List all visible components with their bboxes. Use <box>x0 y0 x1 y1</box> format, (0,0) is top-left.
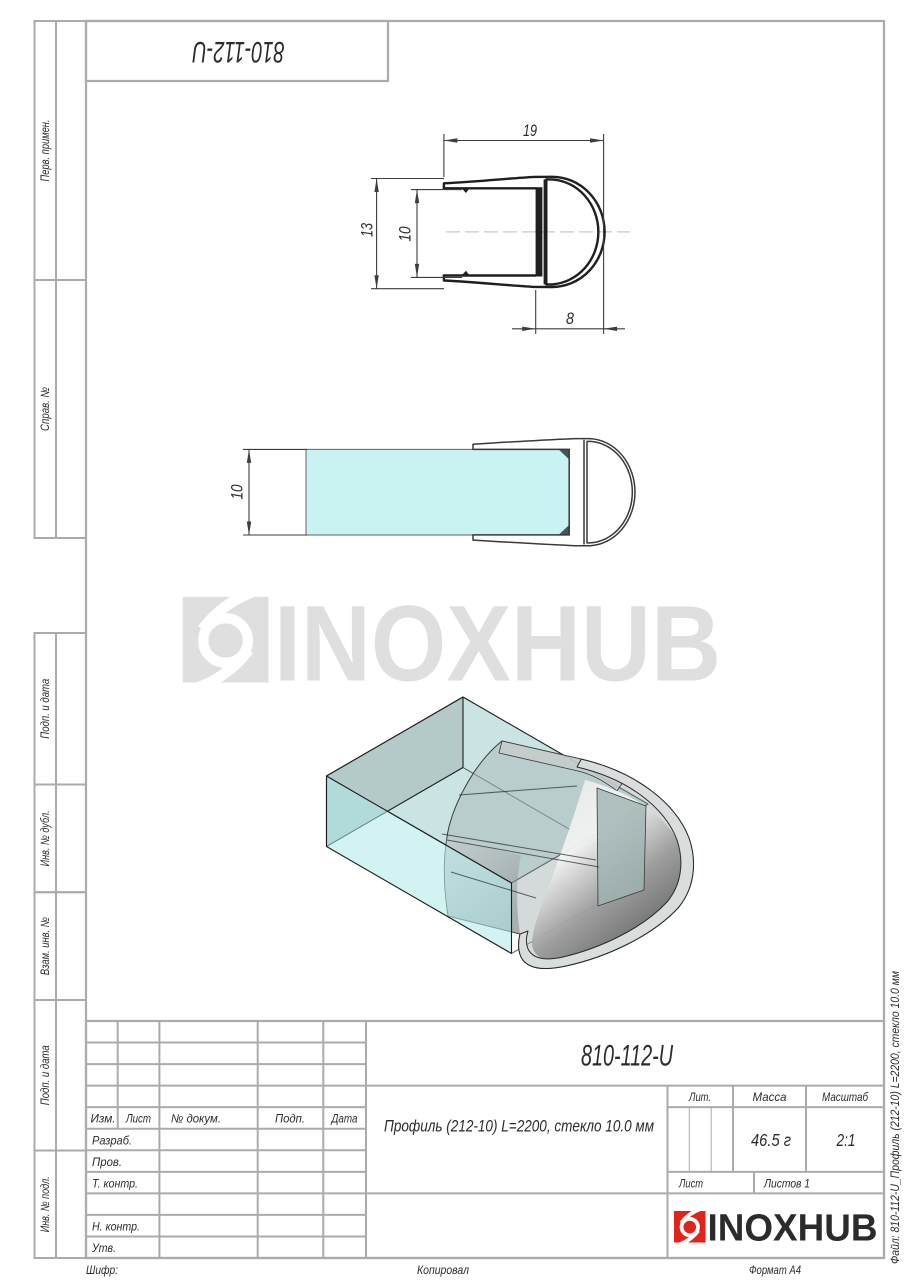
svg-text:13: 13 <box>359 222 377 237</box>
svg-text:Перв. примен.: Перв. примен. <box>38 120 52 182</box>
svg-text:810-112-U: 810-112-U <box>581 1040 673 1073</box>
svg-text:Подп. и дата: Подп. и дата <box>38 1045 52 1105</box>
svg-text:Инв. № подл.: Инв. № подл. <box>38 1176 52 1232</box>
svg-text:INOXHUB: INOXHUB <box>708 1208 878 1250</box>
svg-text:Формат А4: Формат А4 <box>749 1263 801 1277</box>
svg-text:INOXHUB: INOXHUB <box>274 583 721 704</box>
svg-text:Лит.: Лит. <box>688 1090 711 1104</box>
svg-text:2:1: 2:1 <box>836 1130 856 1150</box>
svg-text:Лист: Лист <box>678 1176 703 1190</box>
svg-text:Масса: Масса <box>753 1090 787 1104</box>
svg-text:№ докум.: № докум. <box>171 1112 221 1126</box>
svg-text:Н. контр.: Н. контр. <box>92 1219 140 1233</box>
svg-text:19: 19 <box>523 122 537 140</box>
svg-text:Профиль (212-10) L=2200, стекл: Профиль (212-10) L=2200, стекло 10.0 мм <box>384 1117 654 1136</box>
svg-text:8: 8 <box>566 310 575 328</box>
svg-text:Изм.: Изм. <box>91 1112 116 1126</box>
svg-text:Масштаб: Масштаб <box>822 1090 869 1104</box>
svg-text:10: 10 <box>397 226 415 242</box>
svg-text:Утв.: Утв. <box>91 1241 116 1255</box>
svg-text:Подп.: Подп. <box>275 1112 305 1126</box>
svg-text:Шифр:: Шифр: <box>86 1263 118 1277</box>
svg-text:Инв. № дубл.: Инв. № дубл. <box>38 810 52 866</box>
svg-text:Подп. и дата: Подп. и дата <box>38 678 52 738</box>
svg-text:Лист: Лист <box>125 1112 151 1126</box>
svg-text:810-112-U: 810-112-U <box>192 35 284 68</box>
svg-text:Разраб.: Разраб. <box>92 1133 132 1147</box>
svg-text:Файл: 810-112-U_Профиль (212-1: Файл: 810-112-U_Профиль (212-10) L=2200,… <box>890 971 902 1264</box>
svg-text:Дата: Дата <box>330 1112 358 1126</box>
svg-text:10: 10 <box>229 484 247 500</box>
svg-text:Взам. инв. №: Взам. инв. № <box>38 917 52 975</box>
svg-text:Пров.: Пров. <box>92 1155 122 1169</box>
svg-text:Т. контр.: Т. контр. <box>92 1176 138 1190</box>
svg-text:Справ. №: Справ. № <box>38 387 52 431</box>
svg-text:Листов 1: Листов 1 <box>763 1176 810 1190</box>
svg-text:46.5 г: 46.5 г <box>751 1130 791 1150</box>
svg-text:Копировал: Копировал <box>417 1263 469 1277</box>
